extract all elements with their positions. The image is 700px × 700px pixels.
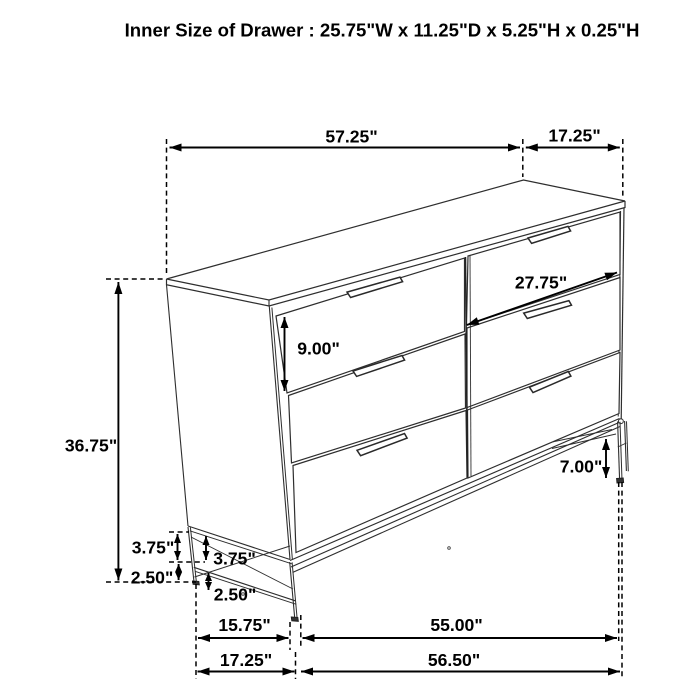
svg-text:56.50": 56.50" bbox=[428, 650, 480, 670]
svg-text:15.75": 15.75" bbox=[218, 615, 270, 635]
svg-text:2.50": 2.50" bbox=[214, 585, 257, 605]
svg-text:55.00": 55.00" bbox=[430, 615, 482, 635]
svg-text:9.00": 9.00" bbox=[297, 339, 340, 359]
svg-text:27.75": 27.75" bbox=[515, 273, 567, 293]
svg-text:2.50": 2.50" bbox=[131, 568, 174, 588]
svg-text:17.25": 17.25" bbox=[548, 126, 600, 146]
svg-text:7.00": 7.00" bbox=[560, 457, 603, 477]
svg-text:36.75": 36.75" bbox=[65, 436, 117, 456]
svg-text:3.75": 3.75" bbox=[213, 549, 256, 569]
svg-text:3.75": 3.75" bbox=[132, 538, 175, 558]
svg-text:Inner Size of Drawer : 25.75"W: Inner Size of Drawer : 25.75"W x 11.25"D… bbox=[125, 20, 640, 41]
svg-text:17.25": 17.25" bbox=[220, 650, 272, 670]
svg-text:57.25": 57.25" bbox=[325, 127, 377, 147]
